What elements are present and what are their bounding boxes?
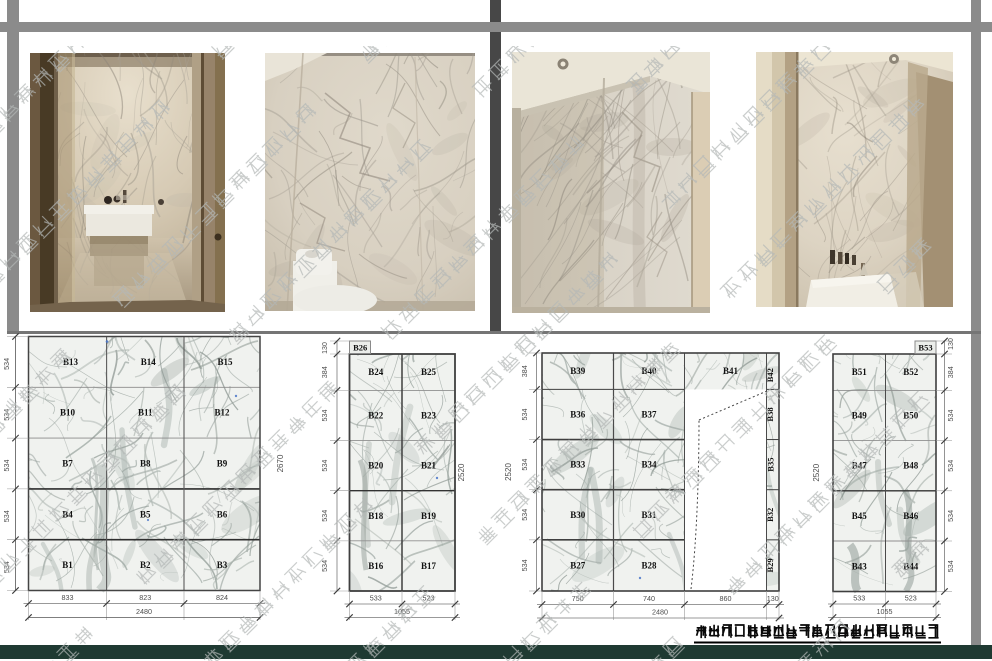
- svg-text:B2: B2: [140, 560, 151, 570]
- svg-text:B36: B36: [570, 409, 586, 419]
- svg-text:384: 384: [946, 366, 955, 378]
- svg-text:B52: B52: [903, 367, 919, 377]
- svg-text:B17: B17: [421, 561, 437, 571]
- svg-text:2480: 2480: [652, 608, 668, 617]
- svg-text:B20: B20: [368, 461, 384, 471]
- svg-text:B1: B1: [62, 560, 73, 570]
- svg-text:B19: B19: [421, 511, 437, 521]
- svg-text:534: 534: [946, 410, 955, 422]
- svg-text:130: 130: [767, 594, 779, 603]
- svg-text:B25: B25: [421, 367, 437, 377]
- svg-text:534: 534: [2, 510, 11, 522]
- svg-text:2520: 2520: [504, 463, 513, 481]
- svg-text:B18: B18: [368, 511, 384, 521]
- svg-text:B24: B24: [368, 367, 384, 377]
- svg-text:B47: B47: [852, 461, 868, 471]
- svg-text:B51: B51: [852, 367, 868, 377]
- svg-text:2520: 2520: [812, 463, 821, 481]
- svg-text:B26: B26: [353, 343, 367, 353]
- svg-text:B9: B9: [217, 459, 228, 469]
- svg-text:B46: B46: [903, 511, 919, 521]
- svg-text:B8: B8: [140, 459, 151, 469]
- svg-text:B14: B14: [141, 357, 157, 367]
- svg-text:B21: B21: [421, 461, 437, 471]
- svg-text:833: 833: [62, 593, 74, 602]
- svg-text:B27: B27: [570, 560, 586, 570]
- svg-text:B28: B28: [641, 560, 657, 570]
- svg-text:B48: B48: [903, 461, 919, 471]
- svg-text:534: 534: [2, 460, 11, 472]
- svg-text:534: 534: [520, 408, 529, 420]
- svg-text:823: 823: [139, 593, 151, 602]
- svg-text:534: 534: [320, 409, 329, 421]
- svg-text:534: 534: [946, 460, 955, 472]
- svg-text:384: 384: [320, 366, 329, 378]
- svg-text:B49: B49: [852, 411, 868, 421]
- svg-text:B37: B37: [641, 409, 657, 419]
- svg-text:130: 130: [322, 342, 329, 354]
- svg-text:130: 130: [948, 338, 955, 350]
- svg-text:B12: B12: [214, 408, 230, 418]
- svg-text:740: 740: [643, 594, 655, 603]
- svg-text:B33: B33: [570, 460, 586, 470]
- svg-text:1055: 1055: [877, 607, 893, 616]
- svg-text:534: 534: [320, 510, 329, 522]
- svg-text:B30: B30: [570, 510, 586, 520]
- svg-text:1055: 1055: [394, 607, 410, 616]
- svg-text:860: 860: [720, 594, 732, 603]
- svg-text:534: 534: [946, 510, 955, 522]
- svg-text:B40: B40: [641, 366, 657, 376]
- svg-text:384: 384: [520, 365, 529, 377]
- svg-text:B53: B53: [918, 343, 932, 353]
- svg-text:B13: B13: [63, 357, 79, 367]
- svg-text:B43: B43: [852, 561, 868, 571]
- svg-text:B44: B44: [903, 561, 919, 571]
- svg-text:B45: B45: [852, 511, 868, 521]
- svg-text:824: 824: [216, 593, 228, 602]
- svg-text:B41: B41: [723, 366, 739, 376]
- svg-text:B3: B3: [217, 560, 228, 570]
- svg-text:534: 534: [520, 559, 529, 571]
- svg-text:534: 534: [2, 358, 11, 370]
- svg-text:B4: B4: [62, 509, 73, 519]
- svg-text:2480: 2480: [136, 607, 152, 616]
- svg-text:534: 534: [320, 560, 329, 572]
- svg-text:523: 523: [905, 594, 917, 603]
- svg-text:B15: B15: [217, 357, 233, 367]
- svg-text:B7: B7: [62, 459, 73, 469]
- svg-text:534: 534: [2, 409, 11, 421]
- svg-text:B39: B39: [570, 366, 586, 376]
- svg-text:B34: B34: [641, 460, 657, 470]
- svg-text:533: 533: [853, 594, 865, 603]
- svg-text:534: 534: [946, 560, 955, 572]
- svg-text:B5: B5: [140, 509, 151, 519]
- svg-text:533: 533: [370, 594, 382, 603]
- svg-text:B10: B10: [60, 408, 76, 418]
- svg-text:B16: B16: [368, 561, 384, 571]
- svg-text:B31: B31: [641, 510, 657, 520]
- svg-text:B22: B22: [368, 410, 384, 420]
- svg-text:2670: 2670: [276, 454, 285, 472]
- svg-text:534: 534: [520, 509, 529, 521]
- svg-text:B11: B11: [138, 408, 153, 418]
- svg-text:534: 534: [320, 460, 329, 472]
- svg-text:B23: B23: [421, 410, 437, 420]
- svg-text:534: 534: [2, 561, 11, 573]
- svg-text:B6: B6: [217, 509, 228, 519]
- svg-text:523: 523: [423, 594, 435, 603]
- svg-text:2520: 2520: [457, 463, 466, 481]
- svg-text:B50: B50: [903, 411, 919, 421]
- svg-text:534: 534: [520, 459, 529, 471]
- svg-text:750: 750: [572, 594, 584, 603]
